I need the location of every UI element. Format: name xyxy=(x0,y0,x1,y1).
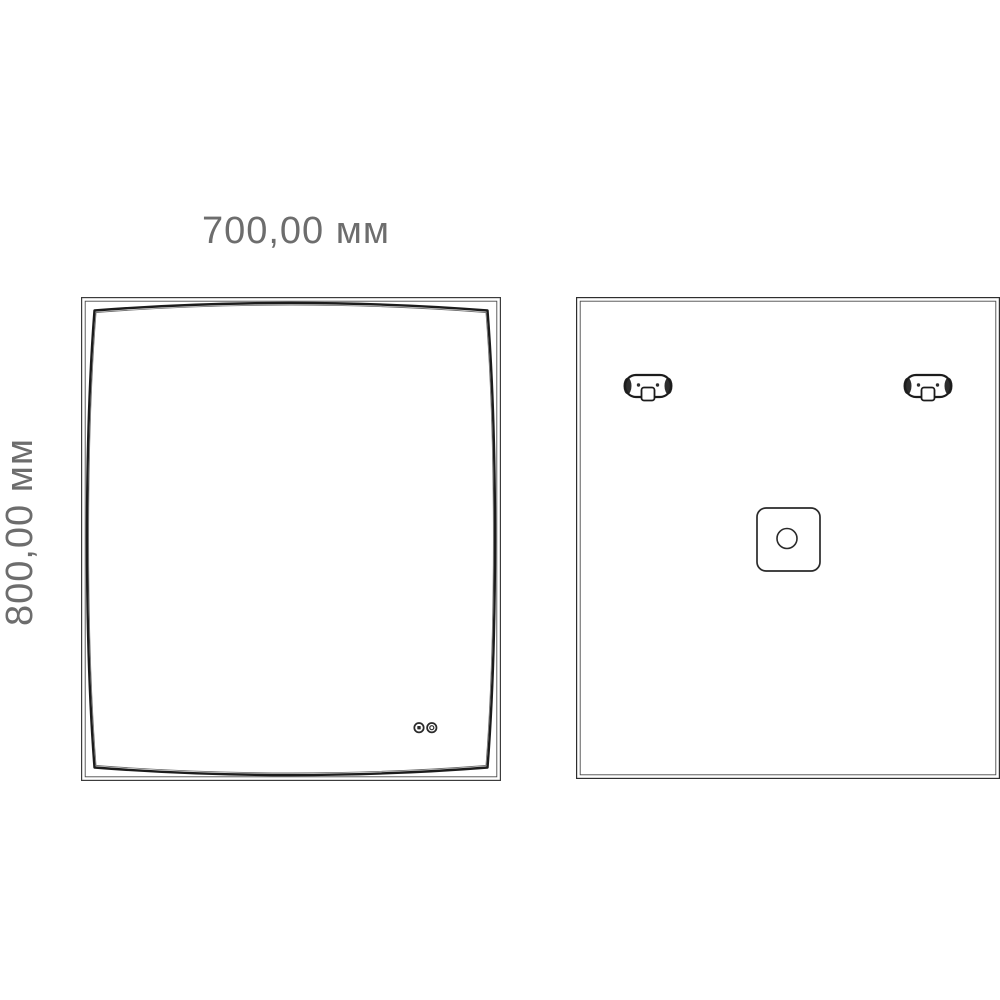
touch-button-2-icon xyxy=(427,723,436,732)
junction-box xyxy=(757,508,820,571)
front-view xyxy=(81,297,501,781)
width-dimension-label: 700,00 мм xyxy=(146,210,446,253)
drawing-canvas: 700,00 мм 800,00 мм xyxy=(0,0,1000,1000)
back-view xyxy=(576,297,1000,779)
bracket-notch xyxy=(922,388,935,401)
bracket-notch xyxy=(642,388,655,401)
touch-sensor-buttons xyxy=(414,723,436,732)
front-outer-frame xyxy=(82,298,501,781)
mirror-facet-inner-line xyxy=(89,305,494,773)
front-inner-frame xyxy=(85,301,497,777)
mirror-facet-edge xyxy=(87,303,495,775)
mounting-bracket-left xyxy=(624,375,673,401)
touch-button-1-icon xyxy=(414,723,423,732)
mounting-bracket-right xyxy=(904,375,953,401)
height-dimension-label: 800,00 мм xyxy=(0,382,45,682)
